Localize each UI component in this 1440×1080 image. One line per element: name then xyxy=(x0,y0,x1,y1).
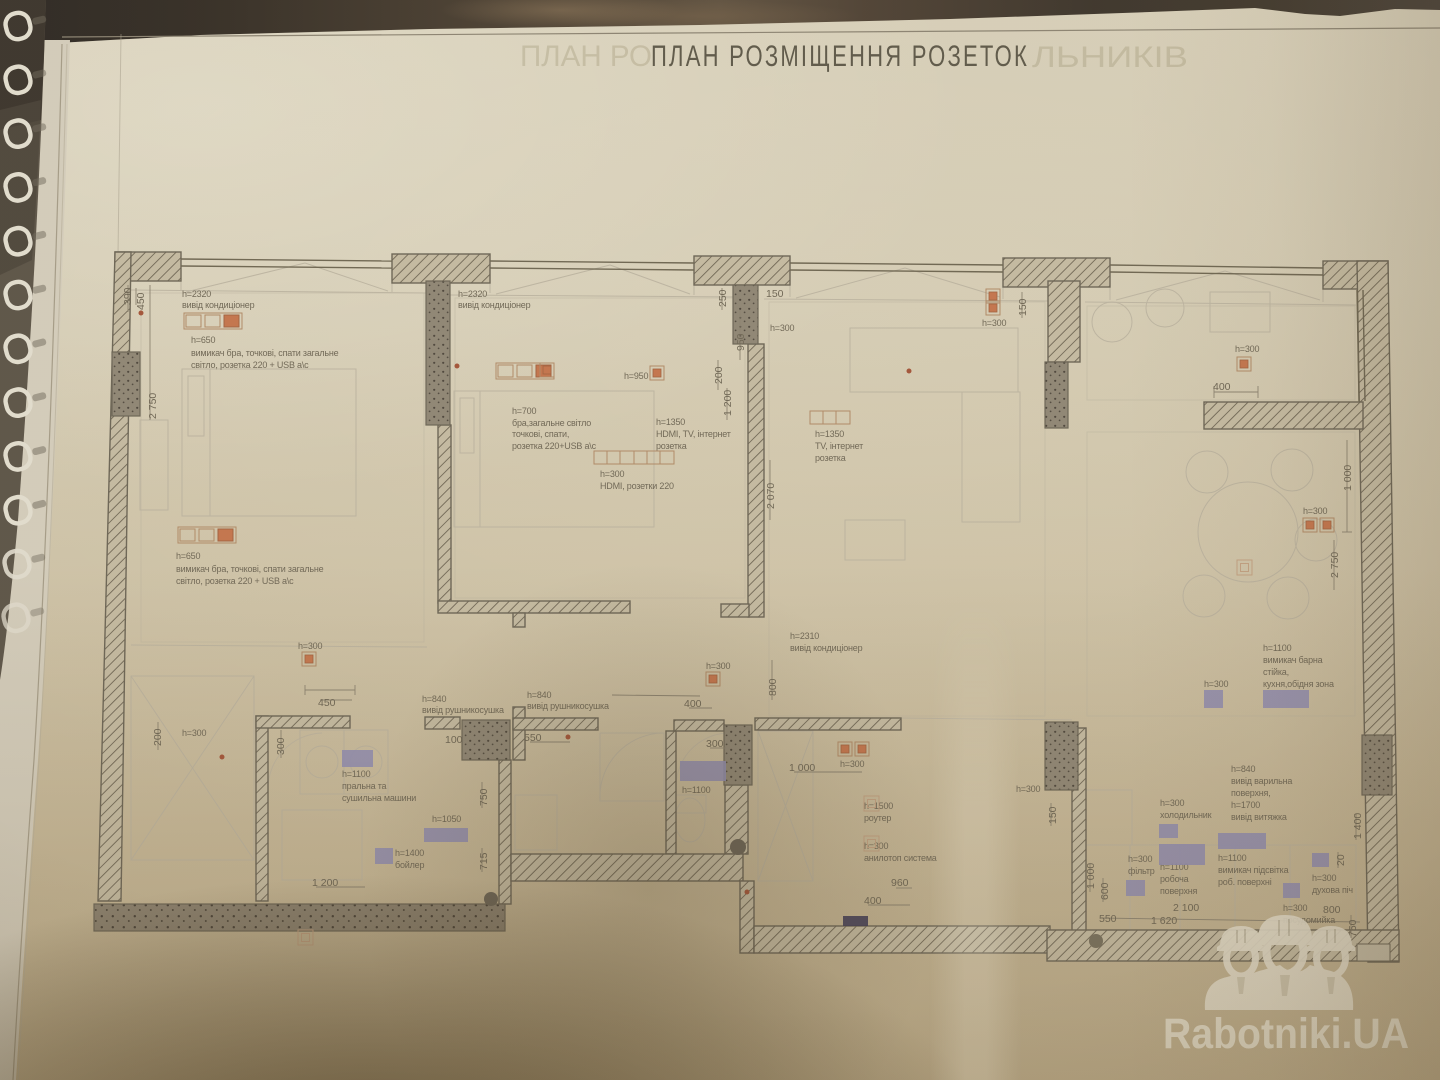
svg-text:h=300: h=300 xyxy=(982,318,1006,328)
svg-text:300: 300 xyxy=(706,738,724,750)
svg-text:вимикач бра, точкові, спати за: вимикач бра, точкові, спати загальне xyxy=(176,564,324,574)
svg-text:h=300: h=300 xyxy=(706,661,730,671)
svg-text:фільтр: фільтр xyxy=(1128,866,1155,876)
svg-text:h=300: h=300 xyxy=(1303,506,1327,516)
svg-text:150: 150 xyxy=(1047,806,1059,824)
svg-text:550: 550 xyxy=(1099,913,1117,925)
svg-text:вивід рушникосушка: вивід рушникосушка xyxy=(527,701,609,711)
svg-text:800: 800 xyxy=(767,678,779,696)
svg-text:h=840: h=840 xyxy=(422,694,446,704)
svg-text:Rabotniki.UA: Rabotniki.UA xyxy=(1163,1010,1409,1058)
svg-text:h=300: h=300 xyxy=(1204,679,1228,689)
svg-text:h=300: h=300 xyxy=(600,469,624,479)
svg-text:h=300: h=300 xyxy=(1312,873,1336,883)
svg-text:вивід варильна: вивід варильна xyxy=(1231,776,1292,786)
svg-text:сушильна машини: сушильна машини xyxy=(342,793,416,803)
svg-text:розетка 220+USB а\с: розетка 220+USB а\с xyxy=(512,441,597,451)
svg-text:h=1700: h=1700 xyxy=(1231,800,1260,810)
svg-text:вимикач підсвітка: вимикач підсвітка xyxy=(1218,865,1289,875)
svg-text:1 400: 1 400 xyxy=(1352,813,1364,839)
svg-text:роутер: роутер xyxy=(864,813,891,823)
svg-text:вивід кондиціонер: вивід кондиціонер xyxy=(790,643,863,653)
svg-text:вимикач бра, точкові, спати за: вимикач бра, точкові, спати загальне xyxy=(191,348,339,358)
svg-text:вимикач барна: вимикач барна xyxy=(1263,655,1323,665)
svg-text:450: 450 xyxy=(318,697,336,709)
svg-text:духова піч: духова піч xyxy=(1312,885,1353,895)
svg-text:2 750: 2 750 xyxy=(1329,552,1341,578)
svg-text:h=700: h=700 xyxy=(512,406,536,416)
svg-text:кухня,обідня зона: кухня,обідня зона xyxy=(1263,679,1334,689)
svg-text:400: 400 xyxy=(864,895,882,907)
svg-text:h=1350: h=1350 xyxy=(815,429,844,439)
svg-text:h=300: h=300 xyxy=(1128,854,1152,864)
svg-text:вивід кондиціонер: вивід кондиціонер xyxy=(182,300,255,310)
svg-text:h=300: h=300 xyxy=(1016,784,1040,794)
svg-text:розетка: розетка xyxy=(815,453,846,463)
svg-text:250: 250 xyxy=(717,289,729,307)
svg-text:200: 200 xyxy=(713,366,725,384)
svg-text:h=840: h=840 xyxy=(1231,764,1255,774)
svg-text:400: 400 xyxy=(1213,381,1231,393)
svg-text:вивід витяжка: вивід витяжка xyxy=(1231,812,1287,822)
svg-text:h=300: h=300 xyxy=(1283,903,1307,913)
svg-text:20: 20 xyxy=(1335,854,1347,866)
svg-text:TV, інтернет: TV, інтернет xyxy=(815,441,863,451)
svg-text:750: 750 xyxy=(478,788,490,806)
svg-text:роб. поверхні: роб. поверхні xyxy=(1218,877,1272,887)
svg-text:вивід кондиціонер: вивід кондиціонер xyxy=(458,300,531,310)
svg-text:400: 400 xyxy=(684,698,702,710)
svg-text:HDMI, розетки 220: HDMI, розетки 220 xyxy=(600,481,674,491)
svg-text:2 070: 2 070 xyxy=(765,483,777,509)
svg-text:h=950: h=950 xyxy=(624,371,648,381)
svg-text:h=300: h=300 xyxy=(840,759,864,769)
svg-text:h=1100: h=1100 xyxy=(1218,853,1247,863)
svg-text:2 750: 2 750 xyxy=(147,393,159,419)
svg-text:100: 100 xyxy=(445,734,463,746)
svg-text:h=650: h=650 xyxy=(191,335,215,345)
svg-text:світло, розетка 220 + USB а\с: світло, розетка 220 + USB а\с xyxy=(191,360,309,370)
svg-text:вивід рушникосушка: вивід рушникосушка xyxy=(422,705,504,715)
svg-text:600: 600 xyxy=(1099,882,1111,900)
svg-text:h=1100: h=1100 xyxy=(682,785,711,795)
svg-text:1 200: 1 200 xyxy=(722,390,734,416)
svg-text:стійка,: стійка, xyxy=(1263,667,1289,677)
svg-text:розетка: розетка xyxy=(656,441,687,451)
svg-text:1 000: 1 000 xyxy=(789,762,815,774)
svg-text:h=300: h=300 xyxy=(182,728,206,738)
svg-text:550: 550 xyxy=(524,732,542,744)
svg-text:холодильник: холодильник xyxy=(1160,810,1212,820)
svg-text:h=1050: h=1050 xyxy=(432,814,461,824)
svg-text:1 000: 1 000 xyxy=(1342,465,1354,491)
svg-text:950: 950 xyxy=(735,333,747,351)
svg-text:h=1100: h=1100 xyxy=(342,769,371,779)
svg-text:h=300: h=300 xyxy=(1235,344,1259,354)
svg-text:960: 960 xyxy=(891,877,909,889)
svg-text:1 620: 1 620 xyxy=(1151,915,1177,927)
svg-text:бойлер: бойлер xyxy=(395,860,424,870)
svg-text:h=1350: h=1350 xyxy=(656,417,685,427)
svg-text:поверхня,: поверхня, xyxy=(1231,788,1271,798)
svg-text:h=1400: h=1400 xyxy=(395,848,424,858)
svg-text:пральна та: пральна та xyxy=(342,781,387,791)
svg-text:h=300: h=300 xyxy=(1160,798,1184,808)
svg-text:h=300: h=300 xyxy=(770,323,794,333)
svg-text:h=650: h=650 xyxy=(176,551,200,561)
svg-text:поверхня: поверхня xyxy=(1160,886,1198,896)
svg-text:h=840: h=840 xyxy=(527,690,551,700)
svg-text:150: 150 xyxy=(1017,298,1029,316)
svg-text:450: 450 xyxy=(135,292,147,310)
svg-text:h=1100: h=1100 xyxy=(1263,643,1292,653)
svg-text:300: 300 xyxy=(275,737,287,755)
svg-text:анилотоп система: анилотоп система xyxy=(864,853,937,863)
svg-text:ПЛАН РО: ПЛАН РО xyxy=(520,40,652,73)
svg-text:бра,загальне світло: бра,загальне світло xyxy=(512,418,591,428)
svg-text:h=2320: h=2320 xyxy=(182,289,211,299)
svg-text:2 100: 2 100 xyxy=(1173,902,1199,914)
svg-text:1 200: 1 200 xyxy=(312,877,338,889)
svg-text:390: 390 xyxy=(122,287,134,305)
svg-text:h=2320: h=2320 xyxy=(458,289,487,299)
svg-text:200: 200 xyxy=(152,728,164,746)
svg-text:1 000: 1 000 xyxy=(1085,863,1097,889)
svg-text:715: 715 xyxy=(478,852,490,870)
svg-text:h=2310: h=2310 xyxy=(790,631,819,641)
svg-text:ПЛАН РОЗМІЩЕННЯ РОЗЕТОК: ПЛАН РОЗМІЩЕННЯ РОЗЕТОК xyxy=(651,40,1029,73)
svg-text:HDMI, TV, інтернет: HDMI, TV, інтернет xyxy=(656,429,731,439)
svg-text:світло, розетка 220 + USB а\с: світло, розетка 220 + USB а\с xyxy=(176,576,294,586)
svg-text:ЛЬНИКІВ: ЛЬНИКІВ xyxy=(1032,41,1188,74)
svg-text:h=300: h=300 xyxy=(298,641,322,651)
svg-text:150: 150 xyxy=(766,288,784,300)
svg-text:робоча: робоча xyxy=(1160,874,1189,884)
svg-text:точкові, спати,: точкові, спати, xyxy=(512,429,569,439)
